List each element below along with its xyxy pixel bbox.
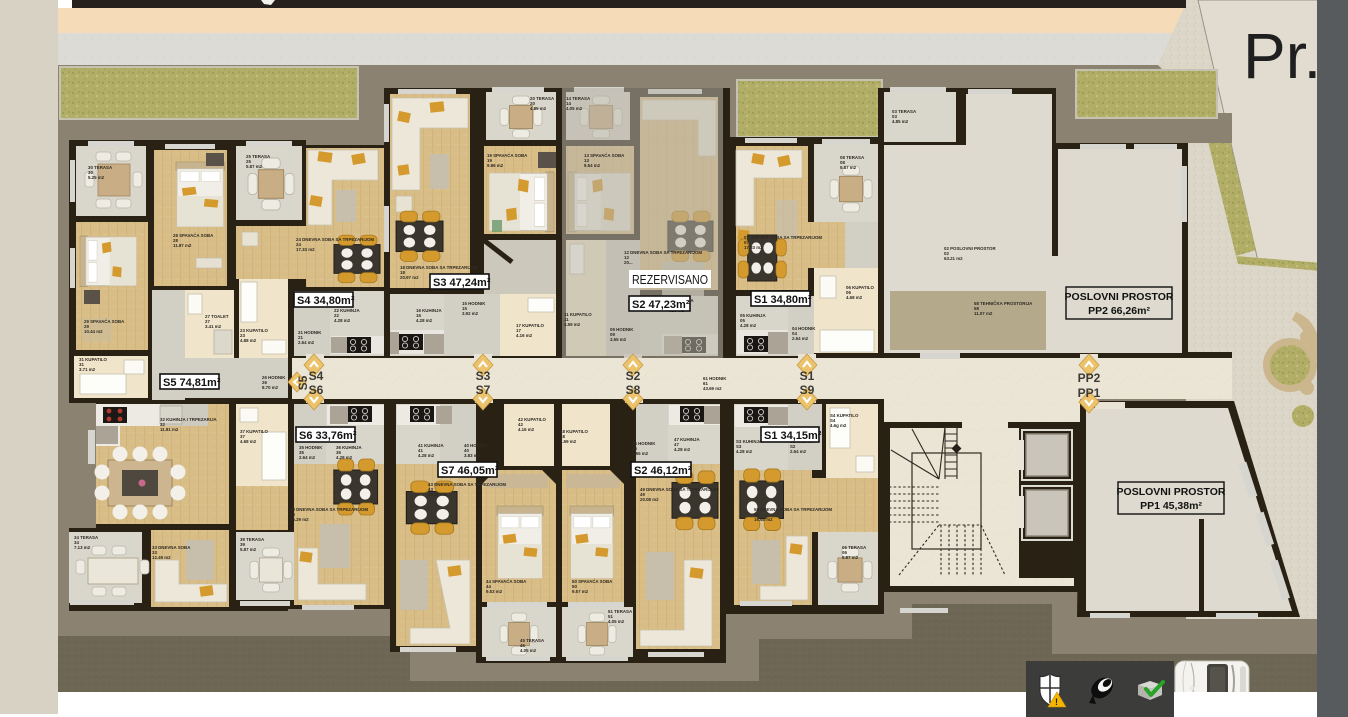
svg-text:S2 46,12m²: S2 46,12m² (634, 465, 692, 477)
svg-text:PP2: PP2 (1078, 371, 1101, 385)
svg-text:S1: S1 (800, 369, 815, 383)
svg-text:S2: S2 (626, 369, 641, 383)
svg-text:S4 34,80m²: S4 34,80m² (297, 295, 355, 307)
svg-text:!: ! (1055, 697, 1058, 707)
svg-text:S6 33,76m²: S6 33,76m² (299, 430, 357, 442)
svg-text:S6: S6 (309, 383, 324, 397)
svg-text:S2 47,23m²: S2 47,23m² (632, 299, 690, 311)
svg-text:S3 47,24m²: S3 47,24m² (433, 277, 491, 289)
svg-text:S4: S4 (309, 369, 324, 383)
svg-text:PP1: PP1 (1078, 386, 1101, 400)
svg-text:POSLOVNI PROSTOR: POSLOVNI PROSTOR (1117, 486, 1226, 498)
svg-text:S5: S5 (296, 375, 310, 390)
svg-text:PP2 66,26m²: PP2 66,26m² (1088, 305, 1150, 317)
svg-text:S8: S8 (626, 383, 641, 397)
svg-text:S9: S9 (800, 383, 815, 397)
svg-text:S3: S3 (476, 369, 491, 383)
svg-text:S5 74,81m²: S5 74,81m² (163, 377, 221, 389)
svg-text:S1 34,15m²: S1 34,15m² (764, 430, 822, 442)
svg-text:S7 46,05m²: S7 46,05m² (441, 465, 499, 477)
svg-text:Pr.: Pr. (1243, 20, 1321, 92)
svg-text:S7: S7 (476, 383, 491, 397)
svg-text:S1 34,80m²: S1 34,80m² (754, 294, 812, 306)
svg-text:POSLOVNI PROSTOR: POSLOVNI PROSTOR (1065, 291, 1174, 303)
svg-text:REZERVISANO: REZERVISANO (632, 273, 708, 287)
svg-text:PP1 45,38m²: PP1 45,38m² (1140, 500, 1202, 512)
